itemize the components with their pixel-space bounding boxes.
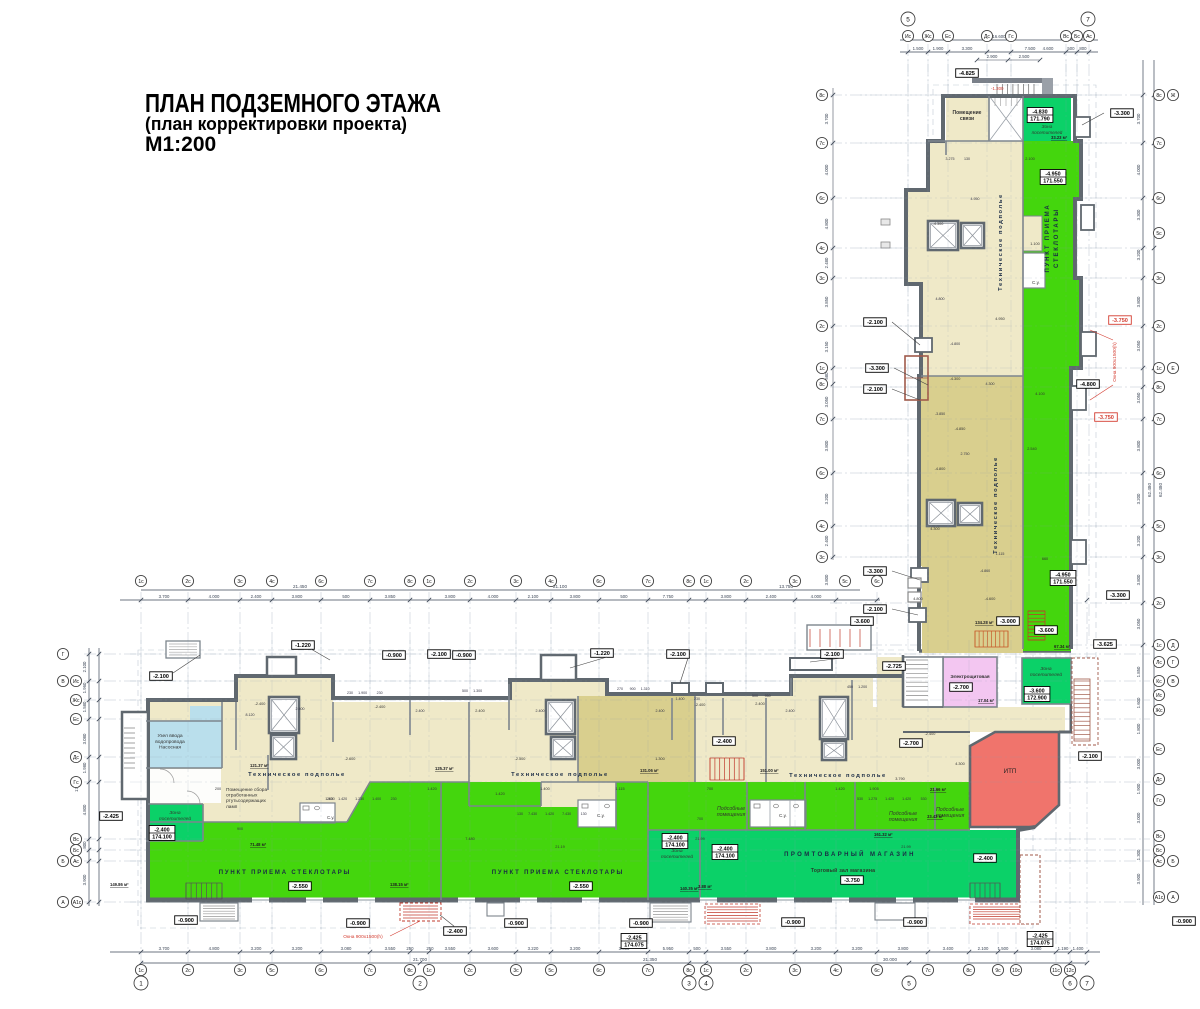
- svg-text:138.15 м²: 138.15 м²: [390, 882, 409, 887]
- svg-text:-2.100: -2.100: [670, 652, 686, 658]
- svg-text:Лс: Лс: [1156, 660, 1162, 666]
- svg-text:-3.000: -3.000: [1000, 619, 1016, 625]
- svg-text:2с: 2с: [185, 968, 191, 974]
- svg-text:4с: 4с: [548, 579, 554, 585]
- svg-text:водопровода: водопровода: [155, 740, 185, 745]
- svg-text:500: 500: [693, 946, 701, 951]
- svg-text:8с: 8с: [407, 968, 413, 974]
- svg-text:-0.900: -0.900: [350, 921, 366, 927]
- svg-text:Жс: Жс: [1155, 708, 1163, 714]
- svg-text:250: 250: [406, 946, 414, 951]
- svg-text:Ес: Ес: [945, 34, 951, 40]
- svg-text:3.220: 3.220: [528, 946, 539, 951]
- svg-text:7с: 7с: [645, 579, 651, 585]
- svg-text:-2.100: -2.100: [824, 652, 840, 658]
- svg-text:-2.400: -2.400: [695, 703, 706, 707]
- svg-text:12с: 12с: [1066, 968, 1075, 974]
- svg-text:1.420: 1.420: [338, 797, 347, 801]
- svg-text:1.400: 1.400: [676, 697, 685, 701]
- svg-text:Г: Г: [62, 652, 65, 658]
- svg-text:174.075: 174.075: [624, 943, 644, 949]
- svg-text:Ас: Ас: [1086, 34, 1092, 40]
- svg-text:1.400: 1.400: [372, 797, 381, 801]
- svg-text:149.86 м²: 149.86 м²: [110, 882, 129, 887]
- svg-text:4.000: 4.000: [1136, 164, 1141, 175]
- svg-text:3.200: 3.200: [1136, 493, 1141, 504]
- svg-text:3с: 3с: [792, 579, 798, 585]
- svg-text:3.200: 3.200: [824, 493, 829, 504]
- svg-text:230: 230: [377, 691, 383, 695]
- svg-text:1.300: 1.300: [655, 757, 665, 761]
- svg-text:3.700: 3.700: [824, 113, 829, 124]
- svg-text:3.800: 3.800: [766, 946, 777, 951]
- svg-text:-2.400: -2.400: [716, 739, 732, 745]
- svg-text:2.400: 2.400: [766, 594, 777, 599]
- svg-text:4.800: 4.800: [824, 218, 829, 229]
- svg-text:134.28 м²: 134.28 м²: [975, 620, 994, 625]
- svg-text:-2.100: -2.100: [867, 320, 883, 326]
- svg-text:4.600: 4.600: [1043, 46, 1054, 51]
- svg-text:-3.300: -3.300: [869, 366, 885, 372]
- svg-text:Бс: Бс: [1074, 34, 1080, 40]
- svg-text:7с: 7с: [367, 579, 373, 585]
- svg-text:6: 6: [1068, 980, 1072, 987]
- svg-text:-0.900: -0.900: [785, 920, 801, 926]
- svg-text:3.800: 3.800: [570, 594, 581, 599]
- svg-text:ПУНКТ ПРИЕМА СТЕКЛОТАРЫ: ПУНКТ ПРИЕМА СТЕКЛОТАРЫ: [492, 870, 624, 876]
- svg-text:4с: 4с: [833, 968, 839, 974]
- svg-text:67.34 м²: 67.34 м²: [1054, 644, 1071, 649]
- svg-text:1.400: 1.400: [540, 787, 550, 791]
- svg-text:-2.100: -2.100: [867, 607, 883, 613]
- svg-text:1.100: 1.100: [1030, 242, 1040, 246]
- svg-text:2.400: 2.400: [251, 594, 262, 599]
- svg-text:270: 270: [617, 687, 623, 691]
- svg-text:250: 250: [426, 946, 434, 951]
- svg-text:-0.900: -0.900: [178, 918, 194, 924]
- svg-text:Зона: Зона: [1040, 666, 1051, 672]
- svg-text:3.850: 3.850: [824, 296, 829, 307]
- svg-text:2.400: 2.400: [296, 707, 305, 711]
- svg-text:3: 3: [687, 980, 691, 987]
- svg-text:-3.750: -3.750: [844, 878, 860, 884]
- svg-text:2с: 2с: [743, 579, 749, 585]
- svg-text:2.100: 2.100: [82, 661, 87, 672]
- svg-text:8с: 8с: [819, 382, 825, 388]
- svg-text:-4.850: -4.850: [955, 427, 966, 431]
- svg-text:3.275: 3.275: [946, 157, 955, 161]
- svg-text:Техническое подполье: Техническое подполье: [248, 772, 346, 778]
- svg-text:1.420: 1.420: [902, 797, 911, 801]
- svg-text:Жс: Жс: [924, 34, 932, 40]
- svg-text:7с: 7с: [819, 141, 825, 147]
- svg-text:-4.300: -4.300: [950, 377, 961, 381]
- svg-text:ПУНКТ ПРИЕМА СТЕКЛОТАРЫ: ПУНКТ ПРИЕМА СТЕКЛОТАРЫ: [219, 870, 351, 876]
- svg-text:171.790: 171.790: [1030, 117, 1050, 123]
- svg-text:-4.860: -4.860: [980, 569, 990, 573]
- svg-text:-2.500: -2.500: [515, 757, 526, 761]
- svg-text:1.275: 1.275: [868, 797, 877, 801]
- svg-text:200: 200: [215, 787, 221, 791]
- svg-text:4.300: 4.300: [955, 762, 965, 766]
- svg-text:1.420: 1.420: [495, 792, 505, 796]
- svg-text:230: 230: [391, 797, 397, 801]
- svg-text:3.900: 3.900: [82, 874, 87, 885]
- svg-text:3.800: 3.800: [898, 946, 909, 951]
- svg-text:5с: 5с: [548, 968, 554, 974]
- svg-text:отработанных: отработанных: [226, 793, 258, 799]
- svg-text:Дс: Дс: [984, 34, 990, 40]
- svg-text:2.400: 2.400: [824, 535, 829, 546]
- svg-text:2.100: 2.100: [978, 946, 989, 951]
- svg-text:3.850: 3.850: [385, 594, 396, 599]
- svg-text:-4.800: -4.800: [935, 467, 946, 471]
- svg-text:4.000: 4.000: [209, 594, 220, 599]
- svg-text:Бс: Бс: [73, 848, 79, 854]
- svg-text:900: 900: [630, 687, 636, 691]
- svg-text:6с: 6с: [819, 471, 825, 477]
- svg-text:Насосная: Насосная: [159, 745, 181, 751]
- svg-text:1.190: 1.190: [1058, 946, 1069, 951]
- svg-text:130: 130: [581, 812, 587, 816]
- svg-text:3.800: 3.800: [721, 594, 732, 599]
- svg-text:3.050: 3.050: [1136, 618, 1141, 629]
- svg-text:4.800: 4.800: [936, 297, 945, 301]
- svg-text:1.500: 1.500: [913, 46, 924, 51]
- svg-text:6с: 6с: [1156, 471, 1162, 477]
- svg-text:-4.830: -4.830: [1032, 109, 1047, 115]
- svg-text:-2.725: -2.725: [886, 664, 902, 670]
- svg-text:4.000: 4.000: [824, 164, 829, 175]
- svg-text:-3.600: -3.600: [1038, 628, 1054, 634]
- svg-text:171.550: 171.550: [1043, 179, 1063, 185]
- svg-text:-2.400: -2.400: [154, 827, 169, 833]
- svg-text:(план корректировки проекта): (план корректировки проекта): [145, 114, 407, 134]
- svg-text:500: 500: [620, 594, 628, 599]
- svg-text:8с: 8с: [686, 579, 692, 585]
- svg-text:140.35 м²: 140.35 м²: [680, 886, 699, 891]
- svg-text:3.800: 3.800: [1136, 440, 1141, 451]
- svg-text:2.100: 2.100: [528, 594, 539, 599]
- svg-text:5с: 5с: [269, 968, 275, 974]
- svg-text:-3.600: -3.600: [1029, 688, 1044, 694]
- svg-text:-2.400: -2.400: [925, 732, 936, 736]
- svg-text:1.420: 1.420: [545, 812, 554, 816]
- svg-text:3с: 3с: [513, 968, 519, 974]
- svg-text:2.400: 2.400: [475, 709, 485, 713]
- svg-text:6с: 6с: [874, 579, 880, 585]
- svg-text:151.00 м²: 151.00 м²: [760, 768, 779, 773]
- svg-text:ПРОМТОВАРНЫЙ МАГАЗИН: ПРОМТОВАРНЫЙ МАГАЗИН: [784, 850, 916, 858]
- svg-text:1.300: 1.300: [1136, 849, 1141, 860]
- svg-text:Вс: Вс: [1156, 834, 1162, 840]
- svg-text:7.480: 7.480: [465, 837, 475, 841]
- svg-text:174.100: 174.100: [665, 843, 685, 849]
- svg-text:3.800: 3.800: [292, 594, 303, 599]
- svg-text:6с: 6с: [819, 196, 825, 202]
- svg-text:3.200: 3.200: [570, 946, 581, 951]
- svg-text:21.19: 21.19: [555, 845, 565, 849]
- svg-text:4.800: 4.800: [913, 597, 923, 601]
- svg-text:-2.400: -2.400: [447, 929, 463, 935]
- svg-text:230: 230: [694, 697, 700, 701]
- svg-text:5с: 5с: [1156, 231, 1162, 237]
- svg-text:3.800: 3.800: [824, 574, 829, 585]
- svg-text:2.400: 2.400: [416, 709, 425, 713]
- svg-text:5с: 5с: [1156, 524, 1162, 530]
- svg-text:-3.625: -3.625: [1097, 642, 1113, 648]
- svg-text:5с: 5с: [842, 579, 848, 585]
- svg-text:-2.600: -2.600: [345, 757, 356, 761]
- svg-text:посетителей: посетителей: [661, 853, 693, 860]
- svg-text:62.480: 62.480: [1158, 483, 1163, 497]
- svg-text:помещения: помещения: [717, 812, 746, 818]
- svg-text:1.600: 1.600: [1136, 697, 1141, 708]
- svg-text:2с: 2с: [819, 324, 825, 330]
- svg-text:1с: 1с: [1156, 366, 1162, 372]
- svg-text:Вс: Вс: [73, 837, 79, 843]
- svg-text:7с: 7с: [925, 968, 931, 974]
- svg-text:-2.100: -2.100: [1082, 754, 1098, 760]
- svg-text:-2.100: -2.100: [153, 674, 169, 680]
- svg-text:Техническое подполье: Техническое подполье: [789, 773, 887, 779]
- svg-text:7.500: 7.500: [1025, 46, 1036, 51]
- svg-text:3.800: 3.800: [824, 440, 829, 451]
- svg-text:3с: 3с: [513, 579, 519, 585]
- svg-text:3.300: 3.300: [1136, 209, 1141, 220]
- svg-text:-2.400: -2.400: [667, 835, 682, 841]
- svg-text:-1.220: -1.220: [295, 643, 311, 649]
- svg-text:помещения: помещения: [889, 817, 918, 823]
- svg-text:4: 4: [704, 980, 708, 987]
- svg-text:-2.100: -2.100: [867, 387, 883, 393]
- svg-text:1.200: 1.200: [858, 685, 867, 689]
- svg-text:1с: 1с: [138, 968, 144, 974]
- svg-text:Дс: Дс: [73, 755, 79, 761]
- svg-text:7: 7: [1085, 980, 1089, 987]
- svg-text:700: 700: [707, 787, 713, 791]
- svg-text:30.000: 30.000: [883, 957, 897, 962]
- svg-text:500: 500: [462, 689, 468, 693]
- svg-text:1.850: 1.850: [1136, 666, 1141, 677]
- svg-text:Ж: Ж: [1171, 93, 1176, 99]
- svg-text:2.540: 2.540: [1027, 447, 1037, 451]
- svg-text:7: 7: [1086, 16, 1090, 23]
- svg-text:21.99: 21.99: [901, 845, 911, 849]
- svg-text:7.430: 7.430: [562, 812, 571, 816]
- svg-text:4.950: 4.950: [971, 197, 980, 201]
- svg-text:500: 500: [1067, 46, 1075, 51]
- svg-text:8.120: 8.120: [246, 713, 255, 717]
- svg-text:16.600: 16.600: [992, 34, 1006, 39]
- svg-text:174.100: 174.100: [715, 854, 735, 860]
- svg-text:2с: 2с: [185, 579, 191, 585]
- svg-text:4.950: 4.950: [995, 317, 1005, 321]
- svg-text:8с: 8с: [1156, 385, 1162, 391]
- svg-text:Окна 900х1500(h): Окна 900х1500(h): [1112, 342, 1118, 382]
- svg-text:Гс: Гс: [1156, 798, 1162, 804]
- svg-text:Ас: Ас: [1156, 859, 1162, 865]
- svg-text:1.500: 1.500: [998, 946, 1009, 951]
- svg-text:2.400: 2.400: [786, 709, 795, 713]
- svg-text:ртутьсодержащих: ртутьсодержащих: [226, 799, 267, 804]
- svg-text:Гс: Гс: [73, 780, 79, 786]
- svg-text:500: 500: [342, 594, 350, 599]
- svg-text:Зона: Зона: [1042, 124, 1053, 129]
- svg-text:3.550: 3.550: [721, 946, 732, 951]
- svg-text:21.350: 21.350: [643, 957, 657, 962]
- svg-text:10с: 10с: [1012, 968, 1021, 974]
- svg-text:Ас: Ас: [73, 859, 79, 865]
- svg-text:Ес: Ес: [73, 717, 79, 723]
- svg-text:3.150: 3.150: [824, 341, 829, 352]
- svg-text:230: 230: [347, 691, 353, 695]
- svg-text:2с: 2с: [467, 579, 473, 585]
- svg-text:530: 530: [857, 797, 863, 801]
- svg-text:2: 2: [418, 980, 422, 987]
- svg-text:4.000: 4.000: [811, 594, 822, 599]
- svg-text:7с: 7с: [1156, 141, 1162, 147]
- svg-text:7.430: 7.430: [528, 812, 537, 816]
- svg-text:1с: 1с: [819, 366, 825, 372]
- svg-text:3.800: 3.800: [445, 594, 456, 599]
- svg-text:1с: 1с: [138, 579, 144, 585]
- svg-text:1.960: 1.960: [82, 682, 87, 693]
- svg-text:1с: 1с: [703, 968, 709, 974]
- svg-text:7с: 7с: [645, 968, 651, 974]
- svg-text:1.900: 1.900: [358, 691, 367, 695]
- svg-text:2.480: 2.480: [824, 257, 829, 268]
- svg-text:3.200: 3.200: [1136, 249, 1141, 260]
- svg-text:5.950: 5.950: [663, 946, 674, 951]
- svg-text:700: 700: [697, 817, 703, 821]
- svg-text:-3.300: -3.300: [1110, 593, 1126, 599]
- svg-text:1с: 1с: [1156, 643, 1162, 649]
- svg-text:62.480: 62.480: [1147, 483, 1152, 497]
- svg-text:2.400: 2.400: [656, 709, 665, 713]
- svg-text:1с: 1с: [426, 579, 432, 585]
- svg-text:7.750: 7.750: [663, 594, 674, 599]
- svg-text:1.900: 1.900: [933, 46, 944, 51]
- svg-text:174.100: 174.100: [152, 835, 172, 841]
- svg-text:2.100: 2.100: [1025, 157, 1035, 161]
- svg-text:1.900: 1.900: [1136, 783, 1141, 794]
- svg-text:Техническое подполье: Техническое подполье: [998, 193, 1004, 291]
- svg-text:-0.900: -0.900: [907, 920, 923, 926]
- svg-text:Узел ввода: Узел ввода: [157, 733, 182, 739]
- svg-text:-4.950: -4.950: [1045, 171, 1060, 177]
- svg-text:21.450: 21.450: [293, 584, 307, 589]
- svg-text:3.790: 3.790: [895, 777, 905, 781]
- svg-text:-3.300: -3.300: [867, 569, 883, 575]
- svg-text:1с: 1с: [426, 968, 432, 974]
- svg-text:Торговый зал магазина: Торговый зал магазина: [811, 867, 876, 874]
- svg-text:3.900: 3.900: [1136, 873, 1141, 884]
- svg-text:2с: 2с: [1156, 324, 1162, 330]
- svg-text:1.980: 1.980: [82, 762, 87, 773]
- svg-text:-2.700: -2.700: [953, 685, 969, 691]
- svg-text:1.300: 1.300: [473, 689, 482, 693]
- svg-text:Г: Г: [1172, 660, 1175, 666]
- svg-text:3.080: 3.080: [82, 733, 87, 744]
- svg-text:172.900: 172.900: [1027, 696, 1047, 702]
- svg-text:3.550: 3.550: [385, 946, 396, 951]
- svg-text:3.050: 3.050: [824, 396, 829, 407]
- svg-text:2.900: 2.900: [987, 54, 998, 59]
- svg-text:-3.750: -3.750: [1098, 415, 1114, 421]
- svg-text:3.200: 3.200: [292, 946, 303, 951]
- svg-text:4.800: 4.800: [209, 946, 220, 951]
- svg-text:-2.425: -2.425: [626, 935, 641, 941]
- svg-text:3.800: 3.800: [1136, 296, 1141, 307]
- svg-text:4с: 4с: [269, 579, 275, 585]
- svg-text:Кс: Кс: [1156, 679, 1162, 685]
- svg-text:3.050: 3.050: [1136, 392, 1141, 403]
- svg-text:450: 450: [847, 685, 853, 689]
- svg-text:-2.425: -2.425: [1032, 933, 1047, 939]
- svg-text:-0.900: -0.900: [633, 921, 649, 927]
- svg-text:3с: 3с: [237, 579, 243, 585]
- svg-text:530: 530: [921, 797, 927, 801]
- svg-text:3.88 м²: 3.88 м²: [698, 884, 712, 889]
- svg-text:6с: 6с: [1156, 196, 1162, 202]
- svg-text:-2.550: -2.550: [292, 884, 308, 890]
- svg-text:3с: 3с: [237, 968, 243, 974]
- svg-text:С.у.: С.у.: [597, 813, 605, 818]
- svg-text:800: 800: [82, 841, 87, 849]
- svg-text:33.23 м²: 33.23 м²: [1051, 135, 1068, 140]
- svg-text:3.400: 3.400: [943, 946, 954, 951]
- svg-text:ПУНКТ ПРИЕМА: ПУНКТ ПРИЕМА: [1045, 203, 1051, 272]
- svg-text:посетителей: посетителей: [159, 815, 191, 822]
- svg-text:А1с: А1с: [1155, 895, 1164, 901]
- svg-text:Техническое подполье: Техническое подполье: [993, 456, 999, 554]
- svg-text:8с: 8с: [966, 968, 972, 974]
- svg-text:3.700: 3.700: [159, 594, 170, 599]
- svg-text:3.200: 3.200: [852, 946, 863, 951]
- svg-text:-3.300: -3.300: [1114, 111, 1130, 117]
- svg-text:А1с: А1с: [73, 900, 82, 906]
- svg-text:4.000: 4.000: [488, 594, 499, 599]
- svg-text:950: 950: [765, 694, 771, 698]
- svg-text:3.080: 3.080: [341, 946, 352, 951]
- svg-text:-1.300: -1.300: [991, 86, 1004, 91]
- svg-text:-3.600: -3.600: [854, 619, 870, 625]
- svg-text:2с: 2с: [467, 968, 473, 974]
- svg-text:ламп: ламп: [226, 805, 238, 810]
- svg-text:1.310: 1.310: [641, 687, 650, 691]
- svg-text:С.у.: С.у.: [1032, 280, 1040, 285]
- svg-text:2с: 2с: [743, 968, 749, 974]
- svg-text:Техническое подполье: Техническое подполье: [511, 772, 609, 778]
- svg-text:6с: 6с: [596, 968, 602, 974]
- svg-text:131.06 м²: 131.06 м²: [640, 768, 659, 773]
- svg-text:связи: связи: [960, 116, 974, 122]
- svg-text:3с: 3с: [792, 968, 798, 974]
- svg-text:21.99: 21.99: [695, 837, 705, 841]
- svg-text:посетителей: посетителей: [1030, 671, 1062, 678]
- svg-text:3.000: 3.000: [1136, 812, 1141, 823]
- svg-text:121.37 м²: 121.37 м²: [250, 763, 269, 768]
- svg-text:М1:200: М1:200: [145, 133, 216, 156]
- svg-text:Помещение сбора: Помещение сбора: [226, 787, 267, 793]
- svg-text:Гс: Гс: [1008, 34, 1014, 40]
- svg-text:ИТП: ИТП: [1004, 768, 1017, 775]
- svg-text:8с: 8с: [1156, 93, 1162, 99]
- svg-text:1.420: 1.420: [835, 787, 845, 791]
- svg-text:800: 800: [1079, 46, 1087, 51]
- svg-text:4с: 4с: [819, 246, 825, 252]
